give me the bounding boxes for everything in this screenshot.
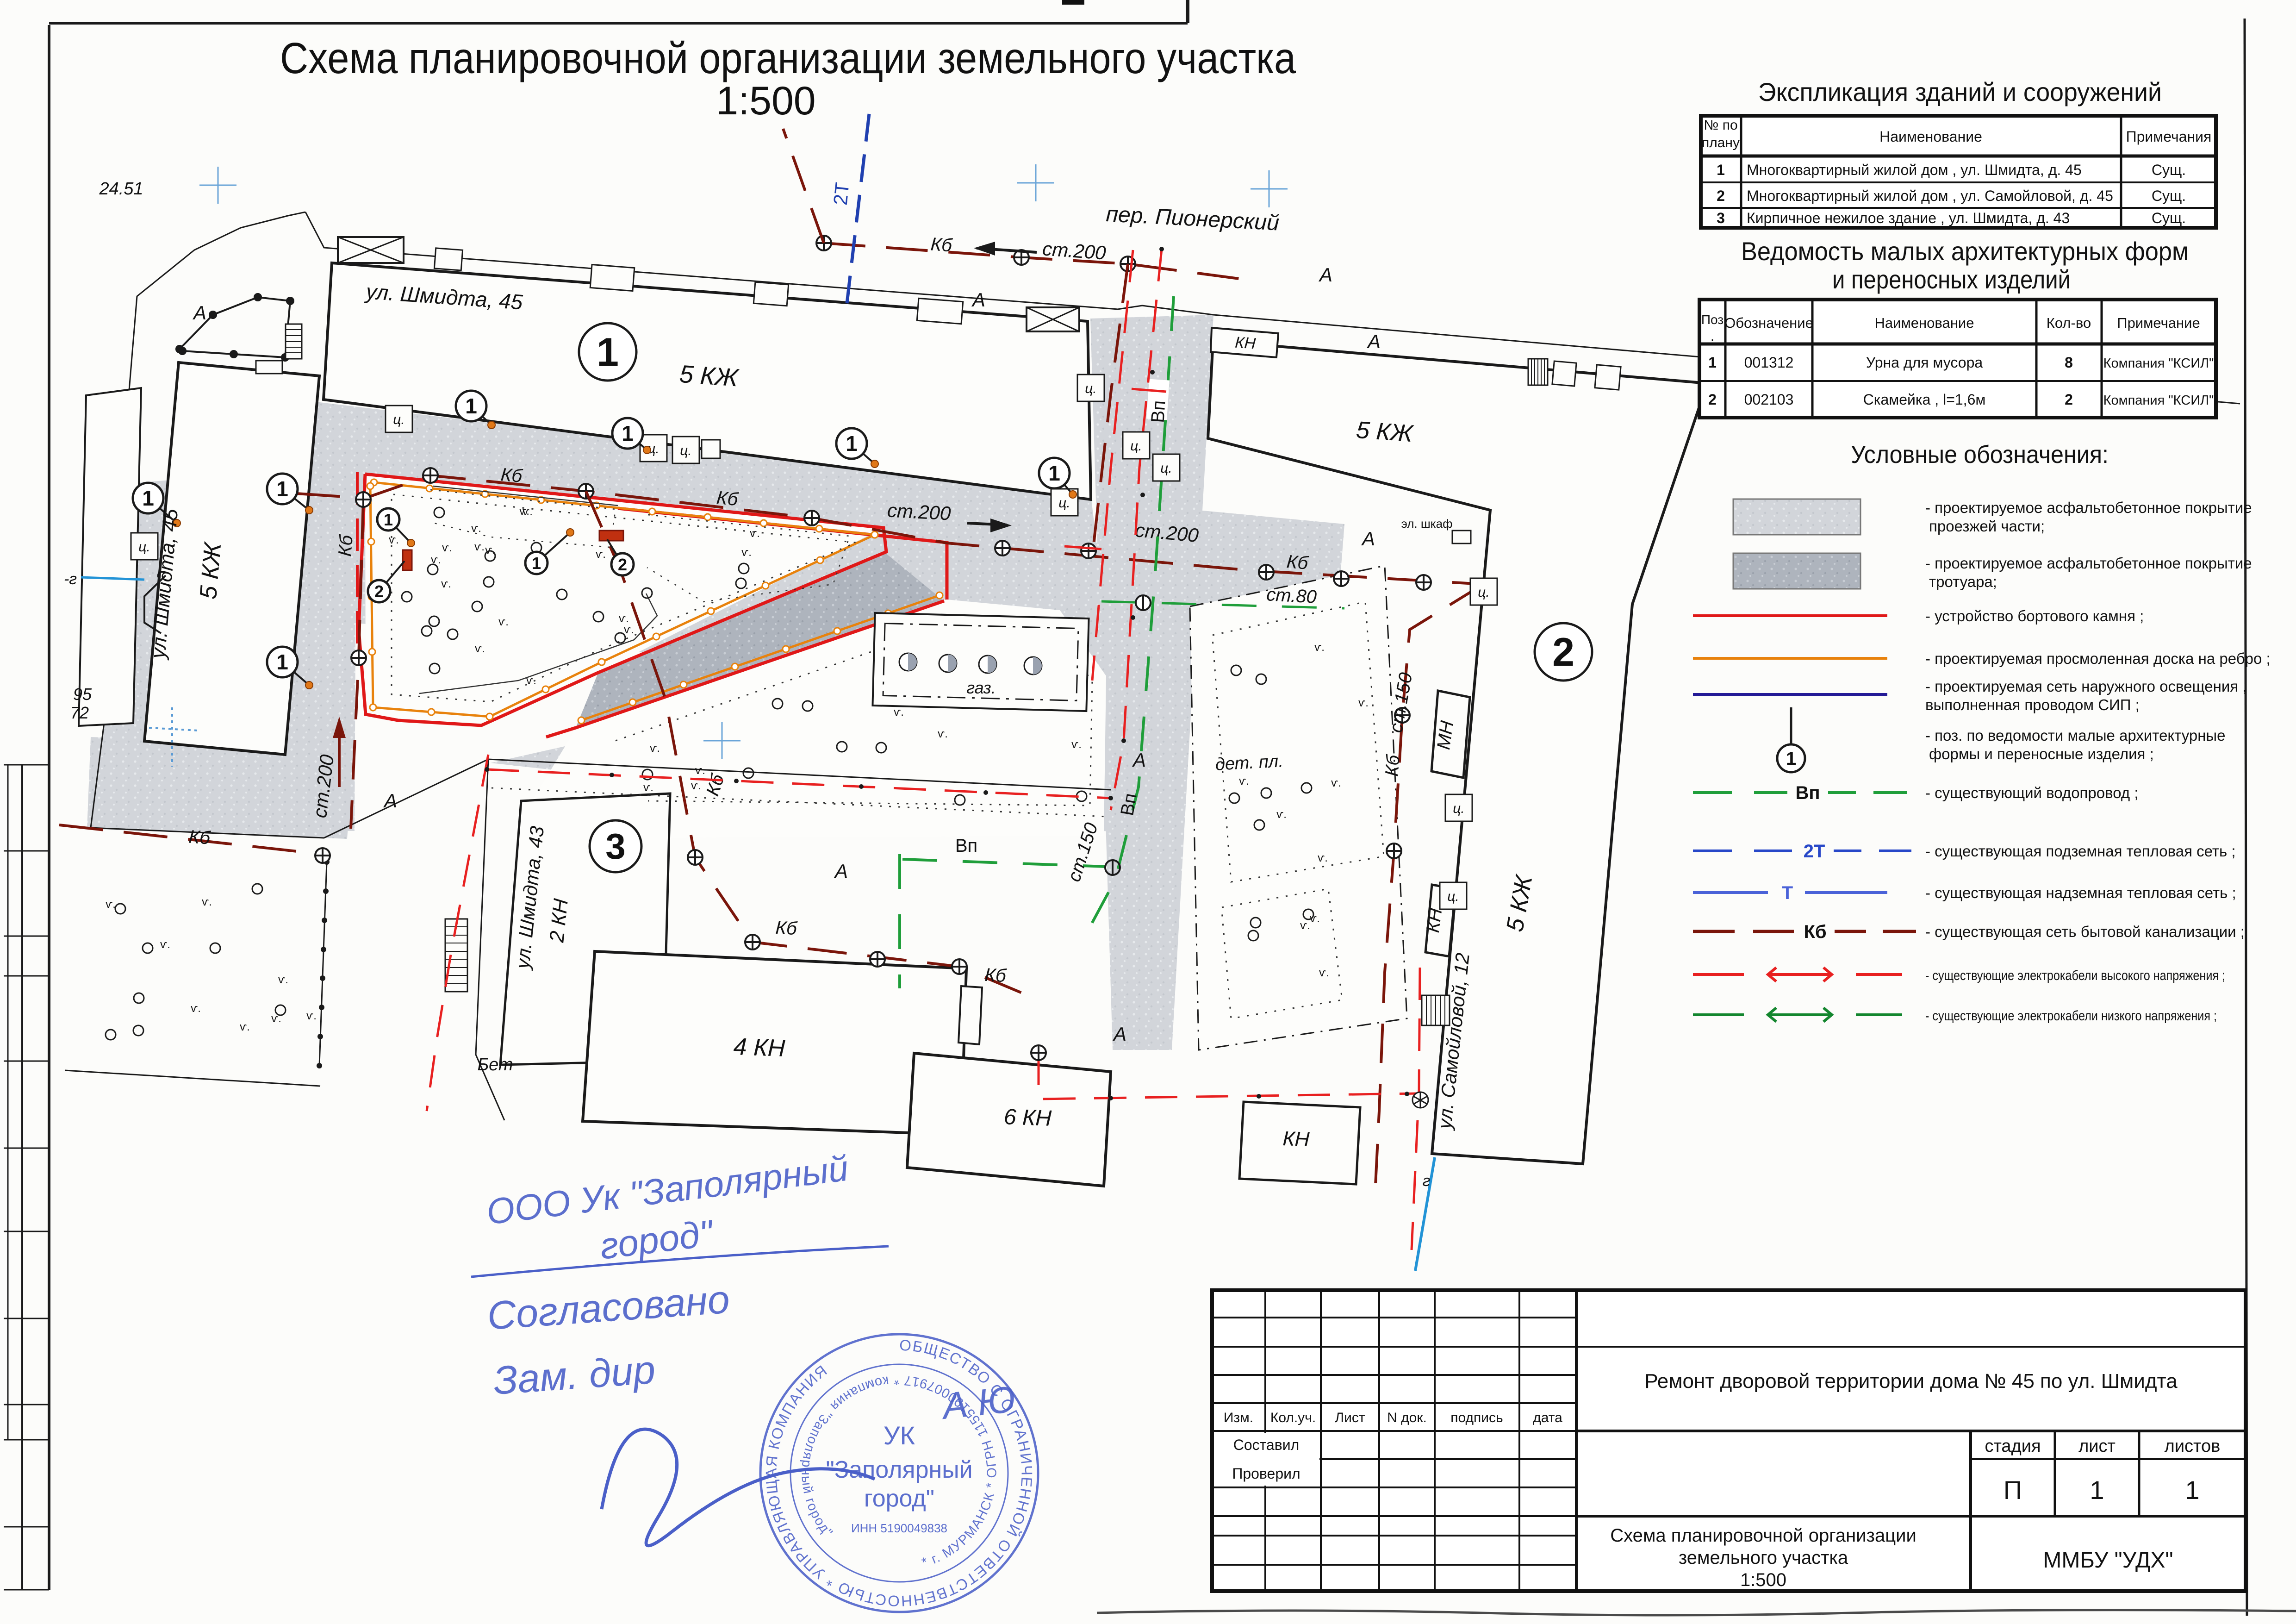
svg-text:ѵ.: ѵ.: [1300, 919, 1310, 932]
svg-text:1: 1: [276, 650, 288, 674]
svg-text:проезжей части;: проезжей части;: [1929, 518, 2045, 535]
svg-text:Поз: Поз: [1701, 312, 1724, 327]
svg-text:А: А: [1361, 528, 1375, 550]
svg-text:ѵ.: ѵ.: [306, 1010, 317, 1022]
svg-text:Кб: Кб: [188, 826, 212, 848]
svg-text:Кб: Кб: [775, 918, 798, 939]
svg-text:N док.: N док.: [1387, 1410, 1427, 1425]
svg-text:ѵ.: ѵ.: [624, 624, 634, 636]
svg-text:ѵ.: ѵ.: [202, 896, 212, 908]
svg-text:А: А: [1112, 1023, 1126, 1045]
svg-text:ѵ.: ѵ.: [596, 548, 606, 561]
svg-text:А: А: [1132, 749, 1146, 771]
svg-text:ѵ.: ѵ.: [750, 527, 760, 540]
svg-text:ѵ.: ѵ.: [271, 1012, 281, 1025]
svg-text:А: А: [971, 289, 985, 311]
svg-text:- проектируемое асфальтобетонн: - проектируемое асфальтобетонное покрыти…: [1925, 499, 2252, 516]
svg-text:город": город": [864, 1485, 934, 1512]
svg-text:2: 2: [374, 582, 384, 601]
svg-text:ѵ.: ѵ.: [1318, 852, 1328, 864]
svg-text:П: П: [2004, 1475, 2022, 1505]
svg-text:Условные обозначения:: Условные обозначения:: [1851, 441, 2109, 468]
svg-text:Обозначение: Обозначение: [1724, 315, 1813, 331]
svg-text:.: .: [1711, 329, 1714, 344]
svg-text:Составил: Составил: [1233, 1437, 1300, 1453]
svg-text:ѵ.: ѵ.: [240, 1021, 250, 1033]
svg-text:и переносных изделий: и переносных изделий: [1832, 265, 2071, 294]
svg-text:дет. пл.: дет. пл.: [1215, 751, 1284, 775]
svg-text:ц.: ц.: [138, 539, 150, 555]
svg-text:- поз. по ведомости малые архи: - поз. по ведомости малые архитектурные: [1925, 727, 2226, 744]
svg-text:- проектируемая сеть наружного: - проектируемая сеть наружного освещения…: [1925, 678, 2247, 695]
svg-text:Сущ.: Сущ.: [2152, 187, 2186, 204]
svg-text:ѵ.: ѵ.: [691, 780, 701, 792]
svg-text:- существующие электрокабели н: - существующие электрокабели низкого нап…: [1925, 1008, 2217, 1024]
svg-text:Проверил: Проверил: [1232, 1465, 1300, 1482]
svg-text:1: 1: [846, 431, 858, 456]
svg-text:001312: 001312: [1744, 354, 1794, 371]
svg-text:6 КН: 6 КН: [1003, 1105, 1052, 1131]
svg-text:ѵ.: ѵ.: [441, 578, 451, 590]
svg-text:МН: МН: [1433, 719, 1457, 751]
svg-text:1:500: 1:500: [1740, 1570, 1786, 1590]
svg-text:формы и переносные изделия ;: формы и переносные изделия ;: [1929, 745, 2154, 762]
svg-text:ѵ.: ѵ.: [160, 938, 170, 951]
svg-text:Лист: Лист: [1335, 1410, 1365, 1425]
svg-text:ѵ.: ѵ.: [650, 742, 660, 755]
svg-text:- существующая надземная тепло: - существующая надземная тепловая сеть ;: [1925, 884, 2236, 901]
svg-text:5 КЖ: 5 КЖ: [195, 540, 227, 600]
svg-text:Кб: Кб: [335, 534, 357, 557]
svg-text:Кол-во: Кол-во: [2047, 315, 2091, 331]
svg-text:1: 1: [465, 394, 477, 418]
svg-text:Многоквартирный жилой дом , ул: Многоквартирный жилой дом , ул. Шмидта, …: [1747, 162, 2082, 178]
svg-text:КН: КН: [1282, 1127, 1310, 1151]
svg-text:Вп: Вп: [955, 836, 977, 856]
svg-text:ѵ.: ѵ.: [106, 898, 116, 911]
svg-text:- существующая подземная тепло: - существующая подземная тепловая сеть ;: [1925, 843, 2236, 860]
svg-text:- существующий водопровод ;: - существующий водопровод ;: [1925, 784, 2139, 801]
svg-text:Кол.уч.: Кол.уч.: [1270, 1410, 1316, 1425]
svg-text:г: г: [1423, 1172, 1431, 1190]
svg-text:ѵ.: ѵ.: [1071, 738, 1082, 751]
svg-text:1: 1: [1717, 162, 1725, 178]
svg-text:ѵ.: ѵ.: [191, 1002, 201, 1015]
svg-text:Ремонт дворовой территории дом: Ремонт дворовой территории дома № 45 по …: [1644, 1370, 2178, 1393]
svg-text:ѵ.: ѵ.: [442, 542, 452, 554]
svg-text:Наименование: Наименование: [1875, 315, 1974, 331]
svg-text:2Т: 2Т: [829, 181, 853, 206]
svg-text:- проектируемая просмоленная д: - проектируемая просмоленная доска на ре…: [1925, 650, 2271, 667]
svg-text:ѵ.: ѵ.: [1239, 775, 1249, 787]
svg-text:ст.200: ст.200: [1042, 237, 1107, 264]
svg-text:ѵ.: ѵ.: [1310, 912, 1320, 925]
svg-text:1: 1: [1786, 749, 1796, 769]
svg-text:Изм.: Изм.: [1224, 1410, 1253, 1425]
svg-text:1: 1: [597, 330, 619, 375]
svg-text:ц.: ц.: [1447, 889, 1459, 904]
svg-text:А: А: [192, 302, 206, 324]
svg-text:ѵ.: ѵ.: [1319, 967, 1329, 979]
svg-text:земельного участка: земельного участка: [1679, 1548, 1848, 1568]
svg-text:А: А: [1318, 264, 1332, 286]
svg-text:Кб: Кб: [1381, 754, 1404, 777]
svg-text:Ведомость малых архитектурных: Ведомость малых архитектурных форм: [1741, 237, 2189, 266]
svg-text:ѵ.: ѵ.: [619, 612, 629, 625]
svg-text:ст.80: ст.80: [1266, 584, 1317, 607]
svg-text:Многоквартирный жилой дом , ул: Многоквартирный жилой дом , ул. Самойлов…: [1747, 187, 2113, 204]
svg-text:ѵ.: ѵ.: [523, 506, 533, 518]
svg-text:ѵ.: ѵ.: [471, 522, 481, 535]
svg-text:2: 2: [1717, 187, 1725, 204]
svg-text:Схема планировочной организаци: Схема планировочной организации земельно…: [280, 34, 1296, 83]
svg-text:2: 2: [1708, 391, 1717, 408]
svg-text:ѵ.: ѵ.: [1358, 697, 1369, 709]
svg-text:Сущ.: Сущ.: [2152, 210, 2186, 226]
svg-text:лист: лист: [2078, 1437, 2116, 1456]
svg-text:8: 8: [2065, 354, 2073, 371]
svg-text:Вп: Вп: [1795, 783, 1820, 803]
svg-text:ц.: ц.: [1160, 461, 1172, 476]
svg-text:газ.: газ.: [966, 678, 996, 697]
svg-text:ѵ.: ѵ.: [474, 541, 485, 553]
svg-text:ц.: ц.: [1130, 438, 1142, 454]
svg-text:2: 2: [1552, 630, 1574, 675]
svg-text:ц.: ц.: [1058, 495, 1070, 511]
svg-text:стадия: стадия: [1985, 1437, 2041, 1456]
svg-text:ѵ.: ѵ.: [526, 675, 536, 687]
svg-text:ѵ.: ѵ.: [643, 781, 653, 794]
svg-text:ц.: ц.: [680, 443, 692, 458]
svg-text:4 КН: 4 КН: [733, 1033, 786, 1062]
svg-text:Компания "КСИЛ": Компания "КСИЛ": [2103, 393, 2214, 408]
svg-text:листов: листов: [2165, 1437, 2221, 1456]
svg-text:Скамейка , l=1,6м: Скамейка , l=1,6м: [1863, 391, 1986, 408]
svg-text:ММБУ "УДХ": ММБУ "УДХ": [2043, 1548, 2173, 1573]
svg-text:Вп: Вп: [1117, 792, 1141, 817]
svg-text:- устройство бортового камня ;: - устройство бортового камня ;: [1925, 607, 2144, 625]
svg-text:ц.: ц.: [1085, 381, 1097, 396]
svg-text:Компания "КСИЛ": Компания "КСИЛ": [2103, 356, 2214, 371]
svg-text:ѵ.: ѵ.: [1331, 777, 1341, 789]
svg-text:подпись: подпись: [1450, 1410, 1503, 1425]
svg-text:ѵ.: ѵ.: [278, 974, 288, 986]
svg-text:Примечание: Примечание: [2117, 315, 2200, 331]
svg-text:А: А: [834, 860, 848, 882]
svg-text:5 КЖ: 5 КЖ: [678, 360, 740, 392]
svg-text:2: 2: [2065, 391, 2073, 408]
svg-text:дата: дата: [1533, 1410, 1562, 1425]
svg-text:эл. шкаф: эл. шкаф: [1401, 517, 1453, 531]
svg-text:Экспликация зданий и сооруж: Экспликация зданий и сооружений: [1758, 77, 2162, 106]
svg-text:ѵ.: ѵ.: [894, 706, 904, 718]
svg-text:Схема планировочной организаци: Схема планировочной организации: [1610, 1525, 1916, 1546]
svg-text:1: 1: [2185, 1475, 2199, 1505]
svg-text:ИНН 5190049838: ИНН 5190049838: [851, 1521, 947, 1535]
svg-text:- существующие электрокабели в: - существующие электрокабели высокого на…: [1925, 968, 2225, 983]
svg-text:ѵ.: ѵ.: [498, 616, 509, 628]
svg-text:1: 1: [276, 477, 288, 501]
svg-text:2Т: 2Т: [1804, 841, 1825, 862]
svg-text:ц.: ц.: [393, 412, 405, 427]
svg-text:Вп: Вп: [1147, 400, 1169, 423]
svg-text:ѵ.: ѵ.: [485, 544, 495, 556]
svg-text:Примечания: Примечания: [2126, 128, 2212, 145]
svg-text:72: 72: [70, 703, 89, 722]
svg-text:Т: Т: [1782, 883, 1793, 903]
svg-text:ц.: ц.: [1453, 801, 1465, 816]
svg-text:3: 3: [605, 826, 625, 867]
svg-text:1: 1: [1708, 354, 1717, 371]
svg-text:"Заполярный: "Заполярный: [826, 1456, 972, 1483]
svg-text:24.51: 24.51: [99, 179, 143, 199]
svg-text:Сущ.: Сущ.: [2152, 162, 2186, 178]
svg-text:1: 1: [622, 421, 634, 445]
svg-text:ѵ.: ѵ.: [741, 546, 752, 559]
svg-text:Бет: Бет: [477, 1055, 513, 1074]
svg-text:ст.200: ст.200: [887, 499, 952, 524]
svg-text:выполненная проводом СИП ;: выполненная проводом СИП ;: [1925, 696, 2140, 713]
svg-text:Наименование: Наименование: [1879, 128, 1982, 145]
svg-text:ѵ.: ѵ.: [1314, 641, 1325, 654]
svg-text:Кирпичное нежилое здание , ул.: Кирпичное нежилое здание , ул. Шмидта, д…: [1747, 210, 2070, 226]
svg-text:1:500: 1:500: [716, 79, 815, 123]
svg-text:ѵ.: ѵ.: [1276, 808, 1287, 821]
svg-text:2: 2: [618, 555, 627, 574]
svg-text:тротуара;: тротуара;: [1929, 573, 1997, 590]
svg-text:№ по: № по: [1704, 118, 1737, 133]
svg-text:1: 1: [142, 486, 154, 510]
svg-text:Кб: Кб: [930, 234, 953, 256]
svg-text:А: А: [1366, 331, 1381, 352]
svg-text:1: 1: [1048, 461, 1060, 485]
svg-text:плану: плану: [1702, 135, 1740, 150]
svg-text:Кб: Кб: [1286, 551, 1309, 574]
svg-text:- существующая сеть бытовой к: - существующая сеть бытовой канализации …: [1925, 923, 2245, 940]
svg-text:ѵ.: ѵ.: [475, 643, 485, 655]
svg-text:Кб: Кб: [716, 487, 740, 510]
svg-text:Урна для мусора: Урна для мусора: [1866, 354, 1983, 371]
svg-text:95: 95: [73, 685, 92, 704]
svg-text:КН: КН: [1423, 907, 1446, 934]
svg-text:УК: УК: [884, 1421, 915, 1450]
svg-text:ѵ.: ѵ.: [938, 728, 948, 740]
svg-text:3: 3: [1717, 210, 1725, 226]
svg-text:2 КН: 2 КН: [545, 898, 572, 944]
svg-text:1: 1: [384, 510, 393, 529]
svg-text:А: А: [383, 790, 397, 812]
svg-text:ѵ.: ѵ.: [389, 534, 399, 546]
svg-text:Кб: Кб: [1804, 922, 1826, 942]
svg-text:002103: 002103: [1744, 391, 1794, 408]
svg-text:- проектируемое асфальтобетонн: - проектируемое асфальтобетонное покрыти…: [1925, 555, 2252, 572]
svg-text:1: 1: [2090, 1475, 2104, 1505]
svg-text:1: 1: [532, 554, 541, 573]
svg-text:5 КЖ: 5 КЖ: [1355, 417, 1415, 448]
svg-text:ц.: ц.: [1478, 585, 1490, 600]
svg-text:КН: КН: [1234, 334, 1257, 353]
svg-text:-г: -г: [64, 570, 77, 588]
svg-text:Кб: Кб: [500, 464, 523, 487]
svg-text:Кб: Кб: [984, 965, 1008, 986]
svg-text:ѵ.: ѵ.: [695, 764, 705, 777]
